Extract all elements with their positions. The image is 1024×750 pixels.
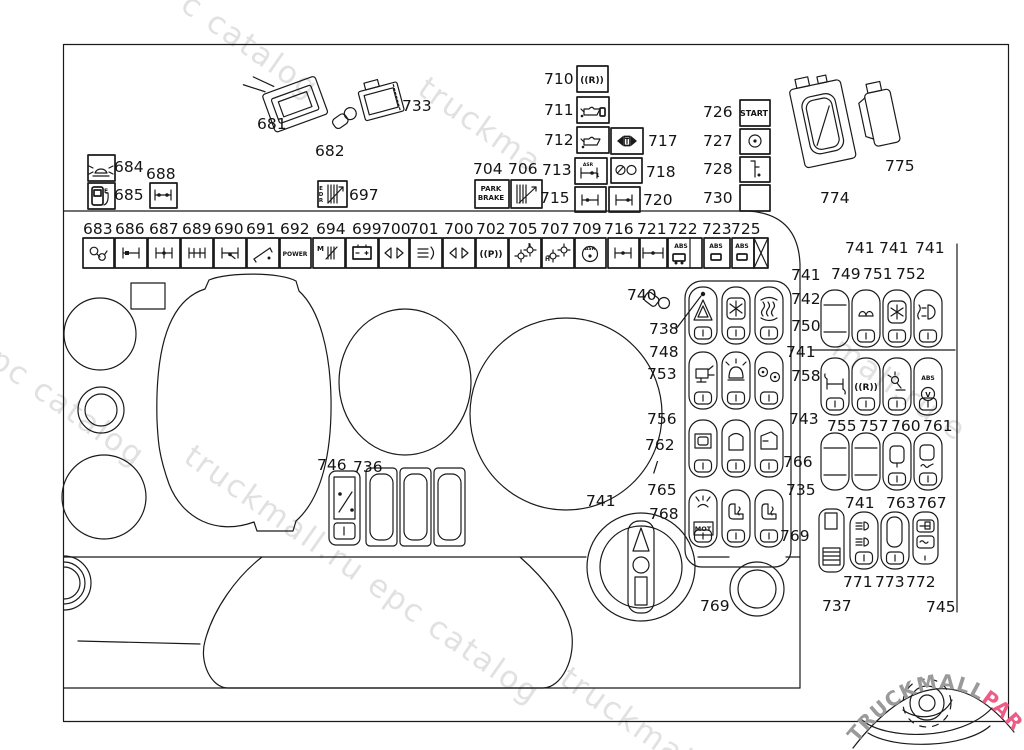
part-label-PARK: PARK — [481, 185, 502, 193]
part-label-ASR: ASR — [583, 162, 594, 168]
diff-lock-icon — [189, 248, 205, 258]
part-label-752: 752 — [896, 265, 926, 283]
right-gauge-cutout — [470, 318, 662, 510]
part-label-700: 700 — [381, 220, 411, 238]
diff-lock-icon — [123, 248, 139, 258]
part-label-694: 694 — [316, 220, 346, 238]
part-label-725: 725 — [731, 220, 761, 238]
part-label-682: 682 — [315, 142, 345, 160]
beacon-icon — [89, 166, 113, 176]
part-label-BRAKE: BRAKE — [478, 194, 505, 202]
part-label-MOT: MOT — [695, 525, 712, 533]
part-label-723: 723 — [702, 220, 732, 238]
edr-bars-icon — [328, 185, 343, 203]
logo-text: TRUCKMALLPARTS — [0, 0, 1024, 746]
part-label-706: 706 — [508, 160, 538, 178]
axle-dot-icon — [615, 248, 631, 258]
worklamp-icon — [696, 366, 714, 382]
snowflake-icon — [727, 298, 745, 319]
part-label-773: 773 — [875, 573, 905, 591]
part-label-737: 737 — [822, 597, 852, 615]
seat-heat-icon — [729, 504, 743, 519]
axle-wide-icon — [643, 248, 663, 258]
part-label-753: 753 — [647, 365, 677, 383]
lights-icon — [515, 244, 536, 262]
part-label-716: 716 — [604, 220, 634, 238]
part-label-738: 738 — [649, 320, 679, 338]
axle-hooks-icon — [825, 374, 846, 394]
part-label-718: 718 — [646, 163, 676, 181]
ramp-icon — [254, 248, 272, 262]
part-label-769: 769 — [780, 527, 810, 545]
part-label-741: 741 — [791, 266, 821, 284]
mirror-heat-icon — [920, 445, 934, 468]
part-label-772: 772 — [906, 573, 936, 591]
part-label-755: 755 — [827, 417, 857, 435]
part-label-710: 710 — [544, 70, 574, 88]
seat-adjust-icon — [617, 136, 637, 146]
part-label-688: 688 — [146, 165, 176, 183]
part-label-POWER: POWER — [283, 251, 308, 258]
beacon-icon — [726, 359, 746, 380]
left-vent-circle — [64, 298, 136, 370]
part-label-H: H — [545, 256, 550, 263]
part-label-722: 722 — [668, 220, 698, 238]
part-label-740: 740 — [627, 286, 657, 304]
defrost-icon — [761, 298, 777, 321]
part-label-702: 702 — [476, 220, 506, 238]
part-label-757: 757 — [859, 417, 889, 435]
diff-lock-icon — [156, 248, 172, 258]
switch-773-insert — [887, 517, 902, 547]
part-label-712: 712 — [544, 131, 574, 149]
part-label-713: 713 — [542, 161, 572, 179]
switch-row — [83, 238, 768, 268]
part-label-774: 774 — [820, 189, 850, 207]
horn-button — [730, 562, 784, 616]
axle-icon — [155, 190, 171, 200]
window-icon — [695, 434, 711, 448]
abs-trailer-icon — [737, 254, 747, 260]
housing-part-774 — [787, 70, 856, 168]
catalog-page: c catalogtruckmal epc catalogtruckmall.r… — [0, 0, 1024, 750]
part-label-733: 733 — [402, 97, 432, 115]
snowflake-icon — [888, 301, 906, 323]
part-label-687: 687 — [149, 220, 179, 238]
lights-hi-icon — [547, 244, 570, 262]
lines-bracket-icon — [418, 247, 434, 259]
part-label-681: 681 — [257, 115, 287, 133]
part-label-735: 735 — [786, 481, 816, 499]
part-label-766: 766 — [783, 453, 813, 471]
part-label-((R)): ((R)) — [580, 76, 603, 86]
part-label-775: 775 — [885, 157, 915, 175]
part-label-741: 741 — [845, 494, 875, 512]
part-label-756: 756 — [647, 410, 677, 428]
part-label-746: 746 — [317, 456, 347, 474]
mirror-icon — [890, 446, 904, 467]
axle-dot-icon — [616, 195, 632, 205]
abs-trailer-icon — [711, 254, 721, 260]
part-label-741: 741 — [845, 239, 875, 257]
part-label-730: 730 — [703, 189, 733, 207]
door-handle-icon — [761, 432, 777, 449]
part-label-699: 699 — [352, 220, 382, 238]
part-label-741: 741 — [586, 492, 616, 510]
part-label-704: 704 — [473, 160, 503, 178]
headlight-level-icon — [856, 522, 869, 546]
part-label-720: 720 — [643, 191, 673, 209]
part-label-689: 689 — [182, 220, 212, 238]
bulb-740-glass — [659, 298, 670, 309]
speedometer-cutout — [157, 274, 331, 531]
oil-can-icon — [581, 137, 600, 148]
part-label-728: 728 — [703, 160, 733, 178]
lever-icon — [751, 161, 761, 177]
part-label-V: V — [925, 391, 931, 399]
switch-772 — [913, 512, 938, 564]
headlight-icon — [918, 305, 935, 319]
part-label-769: 769 — [700, 597, 730, 615]
part-label-768: 768 — [649, 505, 679, 523]
valves-icon — [90, 247, 107, 260]
seat-heat-icon — [762, 504, 776, 519]
part-label-691: 691 — [246, 220, 276, 238]
part-label-692: 692 — [280, 220, 310, 238]
ignition-switch — [587, 513, 695, 621]
part-label-683: 683 — [83, 220, 113, 238]
part-label-741: 741 — [879, 239, 909, 257]
axle-lift-icon — [222, 248, 238, 259]
part-label-686: 686 — [115, 220, 145, 238]
truckmall-logo: TRUCKMALLPARTS — [0, 0, 1024, 748]
part-label-751: 751 — [863, 265, 893, 283]
part-label-750: 750 — [791, 317, 821, 335]
part-label-R: R — [319, 198, 324, 204]
part-label-701: 701 — [409, 220, 439, 238]
part-label-745: 745 — [926, 598, 956, 616]
part-label-765: 765 — [647, 481, 677, 499]
part-label-743: 743 — [789, 410, 819, 428]
axle-dot-icon — [582, 195, 598, 205]
abs-trailer-icon — [673, 254, 685, 265]
center-gauge-cutout — [339, 309, 471, 455]
part-label-736: 736 — [353, 458, 383, 476]
part-label-748: 748 — [649, 343, 679, 361]
circle-dot-icon — [749, 135, 761, 147]
mixer-bars-icon — [326, 247, 337, 259]
part-label-1: 1 — [596, 173, 600, 179]
switch-part-775 — [855, 80, 900, 148]
part-label-START: START — [740, 109, 769, 118]
part-label-((R)): ((R)) — [854, 383, 877, 393]
part-label-697: 697 — [349, 186, 379, 204]
oil-can-icon — [581, 107, 605, 117]
part-label-690: 690 — [214, 220, 244, 238]
part-label-760: 760 — [891, 417, 921, 435]
part-label-705: 705 — [508, 220, 538, 238]
part-label-771: 771 — [843, 573, 873, 591]
parts-diagram: 6816827336846886856977107117127177047067… — [0, 0, 1024, 750]
part-label-709: 709 — [572, 220, 602, 238]
rocker-group-746 — [329, 468, 465, 546]
arrows-icon — [385, 248, 403, 258]
part-label-727: 727 — [703, 132, 733, 150]
part-label-715: 715 — [540, 189, 570, 207]
axle-asr-icon — [581, 168, 597, 178]
part-label-700: 700 — [444, 220, 474, 238]
part-label-ABS: ABS — [709, 243, 723, 250]
part-label-767: 767 — [917, 494, 947, 512]
blank-switch-icon — [740, 185, 770, 211]
coil-icon — [859, 312, 873, 317]
part-label-721: 721 — [637, 220, 667, 238]
part-label-763: 763 — [886, 494, 916, 512]
part-label-761: 761 — [923, 417, 953, 435]
hazard-icon — [694, 300, 712, 320]
part-label-742: 742 — [791, 290, 821, 308]
arrows-icon — [450, 248, 468, 258]
part-label-741: 741 — [915, 239, 945, 257]
part-label-726: 726 — [703, 103, 733, 121]
part-label-ABS: ABS — [735, 243, 749, 250]
part-label-E: E — [104, 188, 108, 195]
part-label-M: M — [317, 245, 324, 253]
bulb-part-682 — [330, 105, 358, 130]
part-label-ABS: ABS — [921, 375, 935, 382]
part-label-707: 707 — [540, 220, 570, 238]
door-icon — [729, 434, 743, 451]
switch-737 — [819, 509, 844, 572]
trailer-circles-icon — [616, 166, 636, 175]
part-label-711: 711 — [544, 101, 574, 119]
part-label-741: 741 — [786, 343, 816, 361]
part-label-ASR: ASR — [585, 246, 596, 252]
steering-column-cutout — [203, 557, 572, 688]
part-label-L: L — [528, 243, 532, 249]
part-label-ABS: ABS — [674, 243, 688, 250]
gauges-icon — [759, 368, 780, 382]
part-label-684: 684 — [114, 158, 144, 176]
part-label-((P)): ((P)) — [479, 250, 502, 260]
switch-part-733 — [356, 75, 404, 121]
lamp-icon — [888, 372, 905, 390]
part-label-/: / — [653, 458, 659, 476]
part-label-685: 685 — [114, 186, 144, 204]
battery-icon — [353, 245, 371, 259]
part-label-717: 717 — [648, 132, 678, 150]
part-label-758: 758 — [791, 367, 821, 385]
bars-arrow-icon — [517, 185, 536, 203]
part-label-762: 762 — [645, 436, 675, 454]
part-label-749: 749 — [831, 265, 861, 283]
